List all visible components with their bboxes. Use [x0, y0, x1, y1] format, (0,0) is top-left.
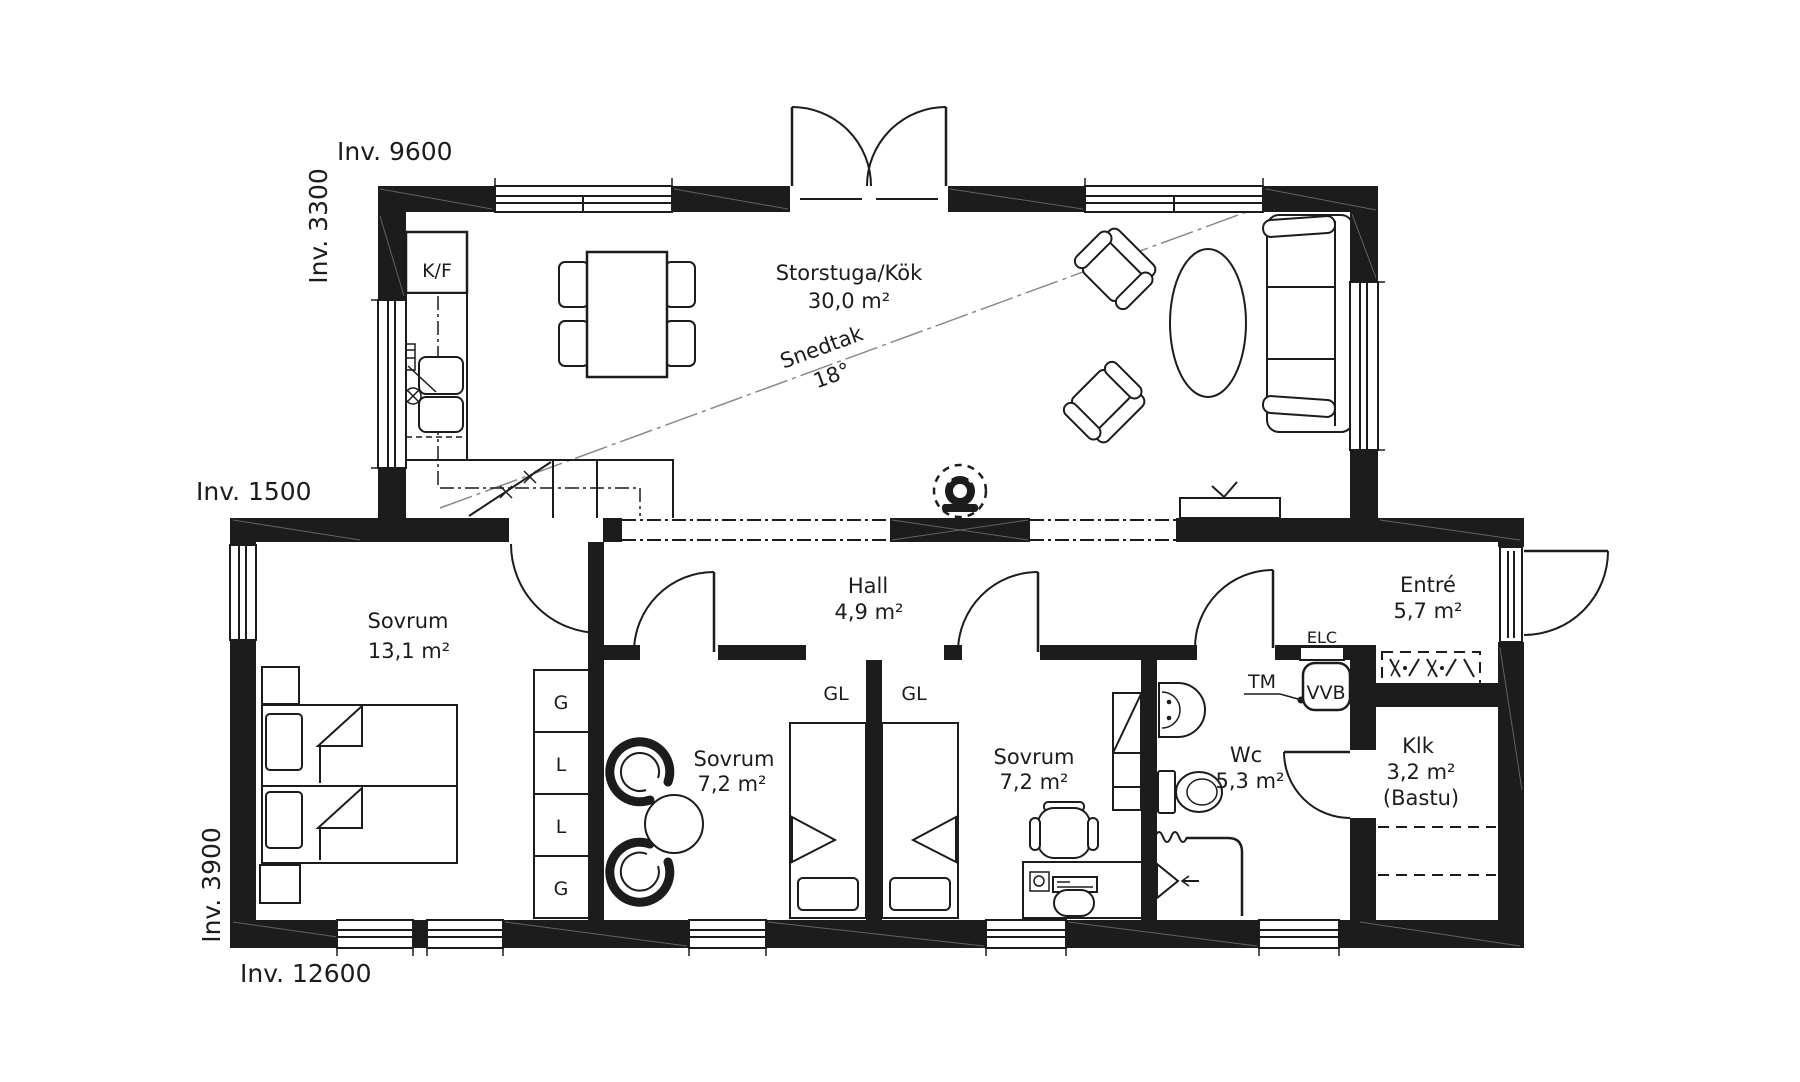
fan-chair-icon [610, 742, 670, 802]
single-bed-icon [790, 723, 866, 918]
bathroom-sink-icon [1159, 683, 1205, 737]
desk-icon [1023, 862, 1142, 918]
desk-chair-icon [1030, 802, 1098, 858]
fan-chair-icon [610, 842, 670, 902]
room-label-klk: Klk [1402, 734, 1435, 758]
room-note-klk: (Bastu) [1383, 786, 1459, 810]
tall-cabinet-icon [1113, 693, 1141, 810]
door-klk [1284, 752, 1350, 818]
door-mid-bedroom [634, 572, 714, 652]
label-closet-gl-right: GL [901, 683, 927, 705]
room-label-storstuga: Storstuga/Kök [776, 261, 923, 285]
label-tm: TM [1247, 671, 1276, 693]
armchair-icon [1061, 359, 1151, 449]
dim-bottom: Inv. 12600 [240, 959, 372, 988]
kitchen-counter-sink [403, 293, 467, 488]
label-wardrobe-g1: G [554, 692, 569, 714]
room-label-entre: Entré [1400, 573, 1456, 597]
room-area-entre: 5,7 m² [1394, 599, 1463, 623]
room-area-sovrum-master: 13,1 m² [368, 639, 450, 663]
label-closet-gl-left: GL [823, 683, 849, 705]
single-bed-icon [882, 723, 958, 918]
sofa-icon [1262, 215, 1353, 432]
svg-text:18°: 18° [810, 358, 853, 393]
room-area-klk: 3,2 m² [1387, 760, 1456, 784]
french-doors [792, 107, 946, 199]
floor-plan: Inv. 9600 Inv. 3300 Inv. 1500 Inv. 3900 … [0, 0, 1800, 1082]
coffee-table-icon [1170, 249, 1246, 397]
fireplace-icon [934, 465, 986, 517]
tv-bench-icon [1180, 482, 1280, 518]
toilet-icon [1158, 771, 1222, 813]
snedtak-label: Snedtak 18° [777, 321, 877, 401]
label-fridge-freezer: K/F [422, 260, 452, 282]
label-wardrobe-l2: L [556, 816, 567, 838]
electrical-cabinet [1300, 647, 1344, 660]
armchair-icon [1072, 222, 1162, 312]
dining-table-icon [559, 252, 695, 377]
door-master-bedroom [511, 542, 600, 633]
coat-rack-icon [1382, 652, 1480, 684]
label-wardrobe-g2: G [554, 878, 569, 900]
room-label-sovrum-mid: Sovrum [693, 747, 774, 771]
dim-top: Inv. 9600 [337, 137, 453, 166]
dim-left-upper: Inv. 3300 [304, 168, 333, 284]
room-label-sovrum-right: Sovrum [993, 745, 1074, 769]
room-label-wc: Wc [1230, 743, 1262, 767]
shower-icon [1155, 832, 1242, 916]
room-label-hall: Hall [848, 574, 888, 598]
klk-shelves [1378, 827, 1496, 875]
double-bed-icon [260, 667, 457, 903]
room-area-sovrum-mid: 7,2 m² [698, 772, 767, 796]
label-wardrobe-l1: L [556, 754, 567, 776]
label-elc: ELC [1307, 628, 1337, 647]
entrance-door [1500, 547, 1608, 642]
room-area-sovrum-right: 7,2 m² [1000, 770, 1069, 794]
room-label-sovrum-master: Sovrum [367, 609, 448, 633]
washing-machine-marker [1244, 694, 1305, 704]
door-right-bedroom [958, 572, 1038, 652]
label-vvb: VVB [1306, 682, 1345, 704]
round-table-icon [645, 795, 703, 853]
dim-left-lower: Inv. 3900 [197, 827, 226, 943]
room-area-hall: 4,9 m² [835, 600, 904, 624]
room-area-storstuga: 30,0 m² [808, 289, 890, 313]
room-area-wc: 5,3 m² [1216, 769, 1285, 793]
door-wc [1195, 570, 1273, 648]
dim-left-middle: Inv. 1500 [196, 477, 312, 506]
floor-plan-drawing: Inv. 9600 Inv. 3300 Inv. 1500 Inv. 3900 … [0, 0, 1800, 1082]
kitchen-counter-return [440, 460, 673, 518]
